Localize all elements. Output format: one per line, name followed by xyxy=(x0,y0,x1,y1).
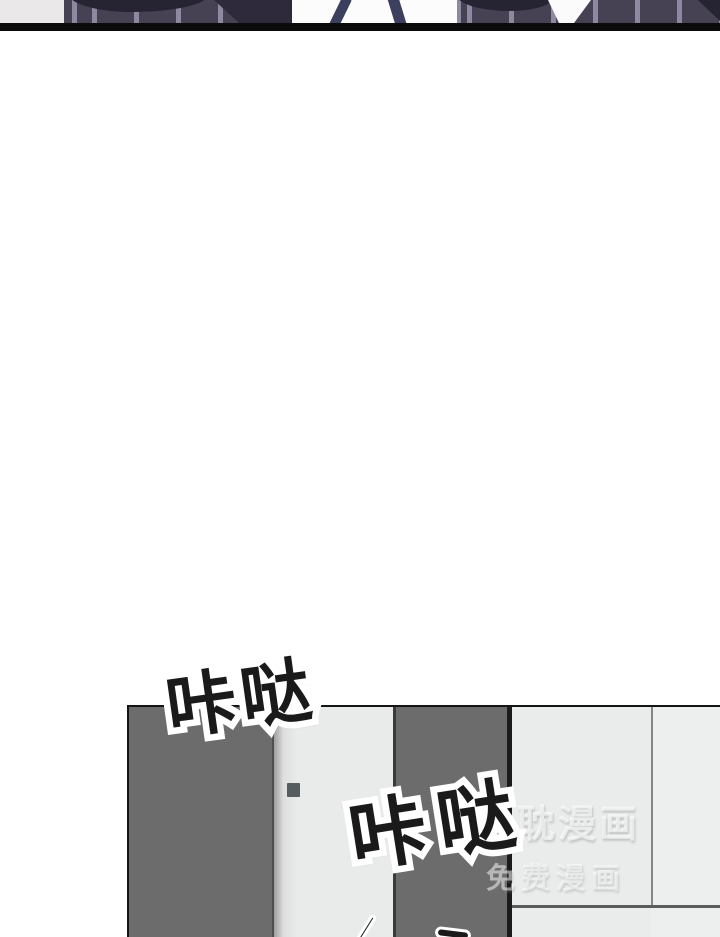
suit-shadow xyxy=(683,0,720,21)
panel-border-line xyxy=(0,23,720,31)
white-shirt xyxy=(292,0,457,23)
sfx-kada-1: 咔哒 xyxy=(162,654,320,744)
suit-shadow xyxy=(194,0,294,23)
shirt-gap xyxy=(543,0,593,23)
pinstripe-suit-right xyxy=(457,0,720,23)
suit-shadow xyxy=(457,0,552,11)
door-handle xyxy=(287,783,300,797)
top-comic-panel xyxy=(0,0,720,31)
door-edge-shading xyxy=(272,707,283,937)
suspender-strap-left xyxy=(328,0,352,23)
comic-page: 咔哒 咔哒 兔耽漫画 免费漫画 xyxy=(0,0,720,937)
watermark-tagline: 免费漫画 xyxy=(486,855,640,897)
wall-right-section xyxy=(653,707,720,937)
suspender-strap-right xyxy=(387,0,407,23)
wall-seam-horizontal xyxy=(512,905,720,908)
background-wall-corner xyxy=(0,0,64,23)
pinstripe-suit-left xyxy=(64,0,294,23)
suit-shadow xyxy=(68,0,208,12)
